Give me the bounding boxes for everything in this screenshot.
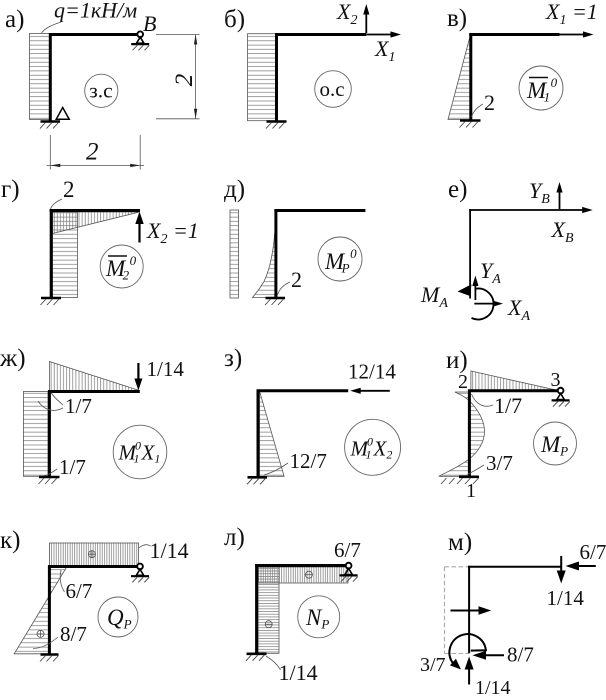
svg-text:1/14: 1/14: [150, 538, 189, 563]
svg-text:12/14: 12/14: [348, 360, 396, 384]
svg-text:ж): ж): [0, 345, 26, 372]
svg-text:6/7: 6/7: [580, 540, 606, 564]
svg-text:M10X1: M10X1: [118, 439, 161, 466]
svg-text:3/7: 3/7: [420, 654, 446, 676]
svg-text:2: 2: [86, 139, 99, 166]
svg-text:X1 =1: X1 =1: [545, 0, 598, 28]
svg-text:е): е): [448, 176, 467, 203]
svg-text:в): в): [447, 5, 467, 32]
svg-text:2: 2: [484, 90, 495, 115]
svg-text:6/7: 6/7: [66, 579, 93, 603]
svg-text:з.с: з.с: [89, 79, 112, 103]
svg-text:8/7: 8/7: [60, 622, 87, 646]
svg-text:и): и): [446, 347, 468, 374]
svg-text:о.с: о.с: [319, 77, 344, 101]
svg-text:1/7: 1/7: [59, 455, 86, 479]
svg-text:а): а): [5, 6, 24, 33]
svg-text:1/14: 1/14: [279, 660, 318, 685]
svg-text:2: 2: [458, 371, 468, 393]
svg-text:1/7: 1/7: [494, 393, 522, 418]
svg-text:б): б): [224, 6, 245, 33]
svg-text:X2 =1: X2 =1: [146, 218, 199, 247]
svg-text:2: 2: [63, 177, 75, 202]
svg-text:M10X2: M10X2: [350, 435, 393, 462]
svg-text:л): л): [224, 524, 245, 551]
svg-text:1/14: 1/14: [547, 586, 585, 610]
svg-text:2: 2: [171, 74, 198, 87]
svg-text:1/7: 1/7: [65, 394, 92, 418]
svg-text:q=1кН/м: q=1кН/м: [54, 0, 137, 23]
svg-text:8/7: 8/7: [507, 643, 534, 667]
svg-text:д): д): [224, 176, 245, 203]
svg-text:к): к): [0, 527, 20, 554]
svg-text:3/7: 3/7: [486, 451, 513, 475]
svg-text:6/7: 6/7: [334, 538, 361, 562]
svg-text:з): з): [224, 345, 242, 372]
svg-text:12/7: 12/7: [290, 449, 327, 473]
svg-text:г): г): [1, 176, 20, 203]
svg-text:1/14: 1/14: [147, 357, 185, 381]
svg-text:м): м): [448, 529, 472, 556]
svg-text:1: 1: [466, 480, 476, 502]
svg-text:1/14: 1/14: [475, 677, 511, 699]
svg-text:B: B: [143, 11, 156, 36]
svg-text:2: 2: [291, 267, 302, 292]
